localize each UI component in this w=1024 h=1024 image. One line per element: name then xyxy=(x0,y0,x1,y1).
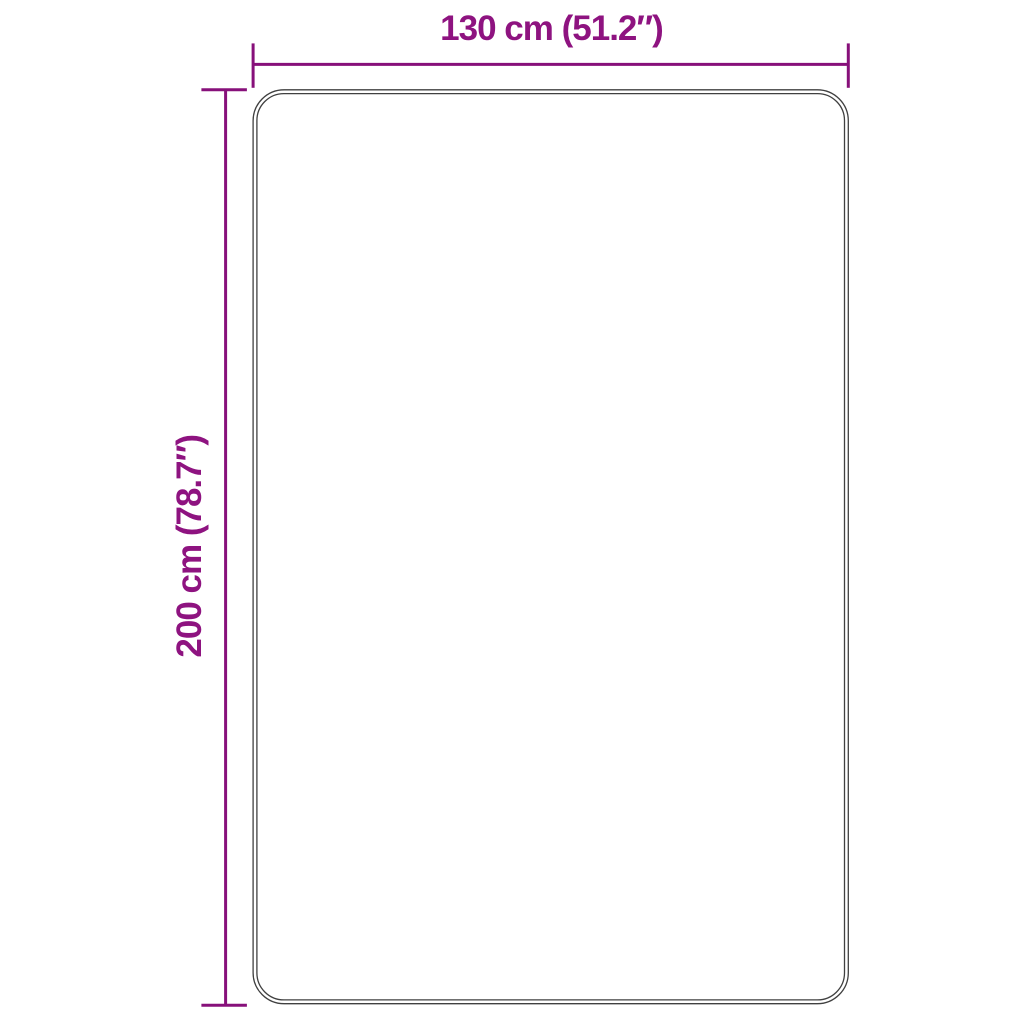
svg-text:130 cm (51.2″): 130 cm (51.2″) xyxy=(440,9,663,48)
svg-text:200 cm (78.7″): 200 cm (78.7″) xyxy=(170,435,209,658)
